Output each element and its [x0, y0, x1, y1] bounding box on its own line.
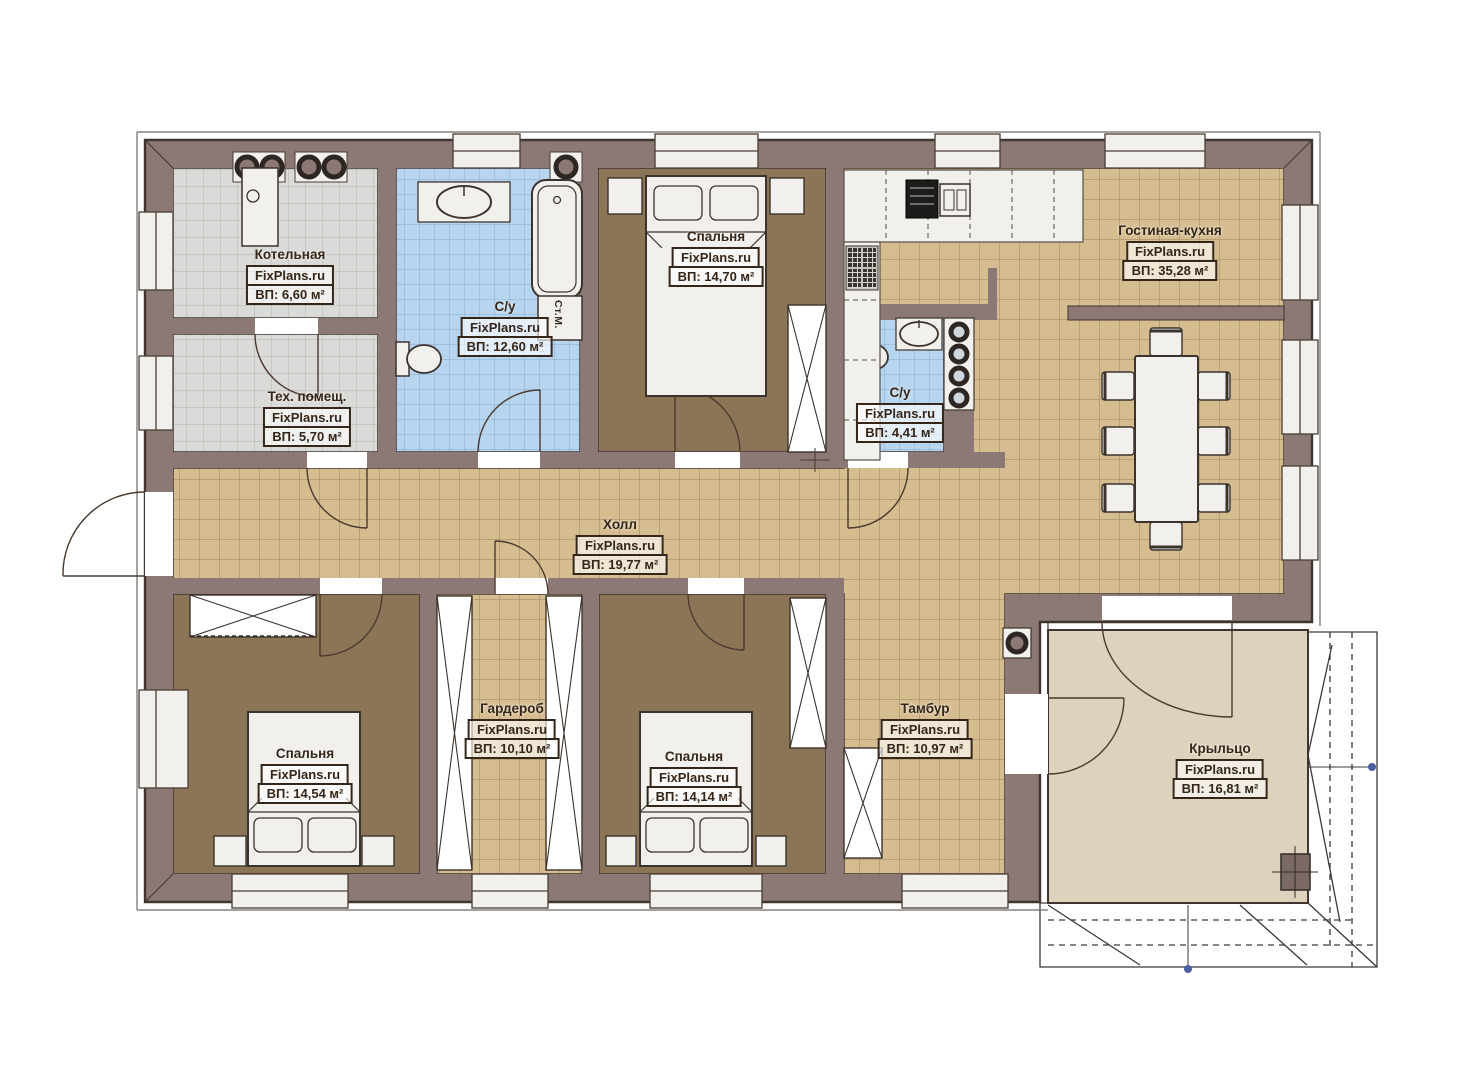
nightstand-icon — [214, 836, 246, 866]
window — [139, 690, 188, 788]
window — [650, 874, 762, 908]
room-label-bedroom-top: Спальня FixPlans.ru ВП: 14,70 м² — [669, 230, 764, 287]
floor-plan-page: Котельная FixPlans.ru ВП: 6,60 м² Тех. п… — [0, 0, 1473, 1080]
window — [472, 874, 548, 908]
room-label-wardrobe: Гардероб FixPlans.ru ВП: 10,10 м² — [465, 702, 560, 759]
window — [139, 356, 173, 430]
watermark: FixPlans.ru — [1126, 241, 1214, 262]
room-area: ВП: 19,77 м² — [573, 554, 668, 575]
room-area: ВП: 6,60 м² — [246, 284, 334, 305]
entry-door-arc — [63, 492, 145, 576]
window — [453, 134, 520, 168]
room-area: ВП: 12,60 м² — [458, 336, 553, 357]
room-label-small-bathroom: С/у FixPlans.ru ВП: 4,41 м² — [856, 386, 944, 443]
room-label-bedroom-mid: Спальня FixPlans.ru ВП: 14,14 м² — [647, 750, 742, 807]
window — [232, 874, 348, 908]
room-area: ВП: 14,54 м² — [258, 783, 353, 804]
watermark: FixPlans.ru — [576, 535, 664, 556]
watermark: FixPlans.ru — [263, 407, 351, 428]
room-area: ВП: 5,70 м² — [263, 426, 351, 447]
watermark: FixPlans.ru — [672, 247, 760, 268]
nightstand-icon — [362, 836, 394, 866]
room-label-tech: Тех. помещ. FixPlans.ru ВП: 5,70 м² — [263, 390, 351, 447]
stove-icon — [906, 180, 938, 218]
nightstand-icon — [756, 836, 786, 866]
wardrobe-icon — [790, 598, 826, 748]
room-label-bathroom: С/у FixPlans.ru ВП: 12,60 м² — [458, 300, 553, 357]
window — [1105, 134, 1205, 168]
wardrobe-icon — [788, 305, 826, 452]
dining-table-icon — [1135, 356, 1198, 522]
room-label-porch: Крыльцо FixPlans.ru ВП: 16,81 м² — [1173, 742, 1268, 799]
cooktop-icon — [846, 246, 878, 290]
room-label-bedroom-left: Спальня FixPlans.ru ВП: 14,54 м² — [258, 747, 353, 804]
room-label-hall: Холл FixPlans.ru ВП: 19,77 м² — [573, 518, 668, 575]
room-label-vestibule: Тамбур FixPlans.ru ВП: 10,97 м² — [878, 702, 973, 759]
nightstand-icon — [608, 178, 642, 214]
nightstand-icon — [606, 836, 636, 866]
washing-machine-label: Ст.М. — [552, 300, 564, 329]
watermark: FixPlans.ru — [856, 403, 944, 424]
watermark: FixPlans.ru — [261, 764, 349, 785]
room-area: ВП: 10,10 м² — [465, 738, 560, 759]
window — [902, 874, 1008, 908]
window — [655, 134, 758, 168]
watermark: FixPlans.ru — [468, 719, 556, 740]
watermark: FixPlans.ru — [461, 317, 549, 338]
wardrobe-icon — [190, 595, 316, 637]
window — [1282, 340, 1318, 434]
window — [139, 212, 173, 290]
room-area: ВП: 14,70 м² — [669, 266, 764, 287]
nightstand-icon — [770, 178, 804, 214]
room-area: ВП: 4,41 м² — [856, 422, 944, 443]
room-area: ВП: 10,97 м² — [878, 738, 973, 759]
room-label-living-kitchen: Гостиная-кухня FixPlans.ru ВП: 35,28 м² — [1118, 224, 1221, 281]
window — [1282, 466, 1318, 560]
room-area: ВП: 35,28 м² — [1123, 260, 1218, 281]
boiler-unit-icon — [242, 168, 278, 246]
floor-plan-drawing — [0, 0, 1473, 1080]
bathtub-icon — [532, 180, 582, 298]
wardrobe-icon — [844, 748, 882, 858]
room-area: ВП: 14,14 м² — [647, 786, 742, 807]
watermark: FixPlans.ru — [881, 719, 969, 740]
watermark: FixPlans.ru — [650, 767, 738, 788]
vent-block — [1003, 628, 1031, 658]
window — [1282, 205, 1318, 300]
window — [935, 134, 1000, 168]
watermark: FixPlans.ru — [1176, 759, 1264, 780]
watermark: FixPlans.ru — [246, 265, 334, 286]
room-area: ВП: 16,81 м² — [1173, 778, 1268, 799]
room-label-boiler: Котельная FixPlans.ru ВП: 6,60 м² — [246, 248, 334, 305]
